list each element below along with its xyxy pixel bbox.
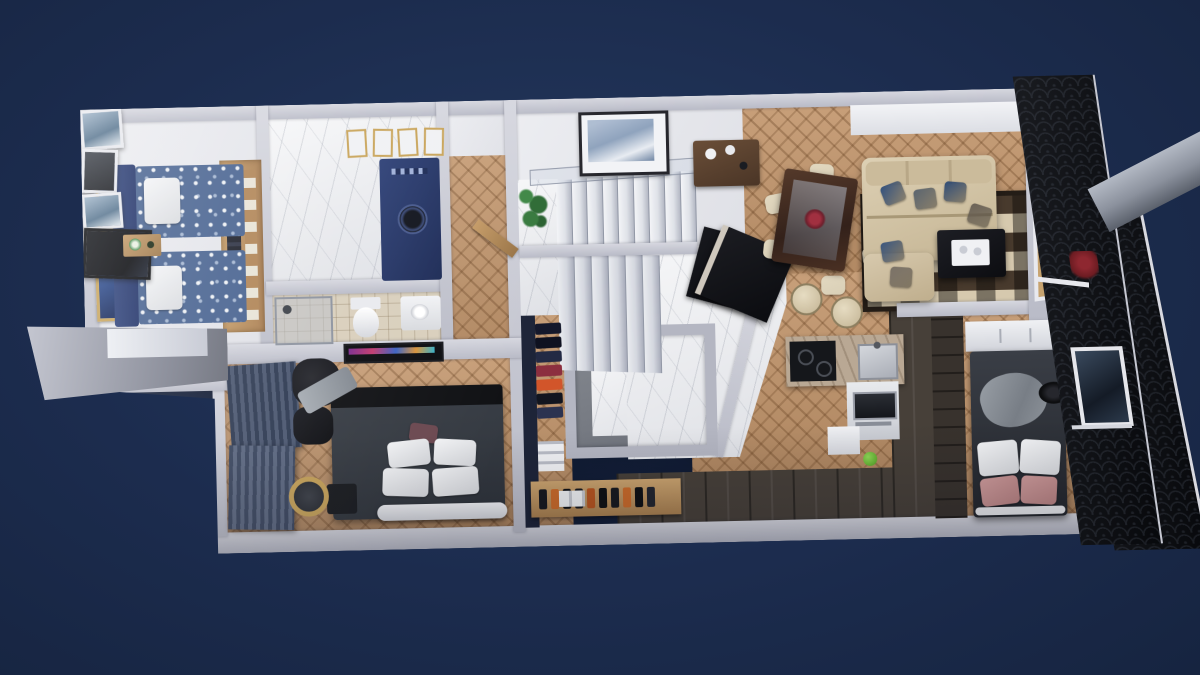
stair-wall-painting: [578, 110, 669, 176]
shoe-shelf: [531, 478, 682, 517]
small-wall-frame: [397, 128, 418, 157]
sofa-pillow: [943, 181, 967, 203]
twin-nightstand: [123, 234, 161, 257]
kitchen-cabinet-white: [827, 426, 860, 455]
twin-bed-towel: [146, 265, 183, 310]
master-headboard: [330, 384, 502, 408]
stairs-upper-flight: [556, 170, 697, 252]
hanging-garment: [536, 364, 563, 376]
bedroom2-wardrobe: [931, 316, 968, 519]
stairs-lower-flight: [557, 252, 662, 373]
bedroom2-bed: [970, 349, 1068, 517]
shoe: [611, 488, 619, 508]
burner: [798, 349, 814, 365]
hanging-garment: [535, 336, 562, 348]
master-pillow-1: [387, 438, 432, 468]
hanging-garment: [535, 350, 562, 362]
toilet: [346, 297, 385, 340]
cooktop: [790, 341, 837, 382]
flower-vase: [129, 238, 141, 250]
serving-tray: [951, 239, 990, 266]
stair-step: [633, 174, 650, 247]
kitchen-counter: [785, 334, 904, 387]
stair-step: [571, 178, 588, 251]
washer-controls: [391, 168, 427, 175]
small-frames-row: [347, 128, 444, 160]
gallery-frame-ocean: [79, 108, 124, 151]
sofa-pillow: [913, 187, 938, 210]
cabinet-drawer-lines: [971, 327, 1063, 343]
wall-tv-master: [343, 342, 443, 364]
shoe: [599, 488, 607, 508]
gallery-frame-dark: [81, 149, 118, 194]
console-bowl: [739, 162, 747, 170]
garment-rack: [535, 323, 564, 436]
shower-head-icon: [283, 305, 292, 314]
shoe: [587, 488, 595, 508]
stair-step: [602, 176, 619, 249]
gallery-ledge: [850, 101, 1051, 136]
twin-bed-towel: [144, 178, 181, 225]
bed-bench: [377, 502, 507, 521]
kitchen-sink: [858, 343, 899, 380]
wine-bottle: [147, 241, 154, 248]
console-vase-2: [725, 145, 735, 155]
stair-step: [587, 177, 604, 250]
stair-step: [649, 172, 666, 245]
closet-drawers: [538, 441, 565, 472]
master-curtains-2: [228, 445, 295, 530]
chimney-body: [1088, 115, 1200, 232]
stair-step: [556, 179, 573, 252]
coffee-table: [937, 229, 1006, 279]
shoe: [635, 487, 643, 507]
console-table: [693, 139, 760, 186]
master-nightstand: [327, 484, 358, 515]
floor-plan: [80, 86, 1120, 556]
dining-table: [771, 168, 858, 272]
hall-top-floor: [440, 113, 513, 161]
painting-art: [587, 119, 654, 162]
bedroom2-pink-pillow-2: [1020, 475, 1057, 505]
dining-chair: [821, 276, 845, 295]
laundry-cabinet: [379, 158, 442, 281]
basin: [411, 304, 429, 320]
bedroom2-pillow-1: [977, 439, 1020, 477]
hanging-garment: [537, 406, 564, 418]
bedroom2-pink-pillow-1: [979, 475, 1020, 508]
master-pillow-3: [382, 468, 429, 497]
faucet: [874, 342, 881, 349]
gallery-frame-ocean: [81, 192, 124, 231]
shower-enclosure: [274, 296, 333, 345]
oven-handle: [855, 421, 891, 426]
bathroom-sink: [400, 296, 441, 331]
console-vase: [705, 148, 716, 159]
master-pillow-4: [432, 466, 480, 497]
stair-step: [665, 171, 682, 244]
hanging-garment: [536, 392, 563, 404]
shoe: [647, 487, 655, 507]
shoe: [539, 489, 547, 509]
stair-step: [618, 175, 635, 248]
small-wall-frame: [372, 129, 392, 157]
stair-step: [642, 255, 662, 373]
tv-screen: [349, 347, 435, 355]
small-wall-frame: [423, 128, 443, 156]
sofa-pillow: [880, 240, 905, 263]
mattress-edge: [975, 505, 1065, 515]
bedroom2-cabinet: [965, 319, 1070, 351]
burner: [816, 361, 832, 377]
red-plant: [1068, 251, 1100, 282]
small-wall-frame: [346, 129, 367, 158]
bedroom2-pillow-2: [1019, 439, 1061, 476]
stair-plant: [512, 179, 553, 236]
shoe: [623, 487, 631, 507]
render-canvas: [0, 0, 1200, 675]
apartment-building: [80, 86, 1120, 556]
washer-door: [397, 204, 428, 235]
hanging-garment: [536, 378, 563, 390]
living-window: [1032, 175, 1093, 301]
master-pillow-2: [433, 438, 476, 466]
toilet-bowl: [353, 307, 380, 338]
sofa-back-cushions: [865, 159, 992, 186]
hanging-garment: [535, 322, 562, 334]
sofa-pillow: [889, 266, 912, 287]
chimney-group: [1083, 116, 1200, 271]
storage-boxes: [559, 490, 585, 507]
oven-door: [853, 391, 898, 420]
master-curtains-1: [226, 361, 302, 452]
